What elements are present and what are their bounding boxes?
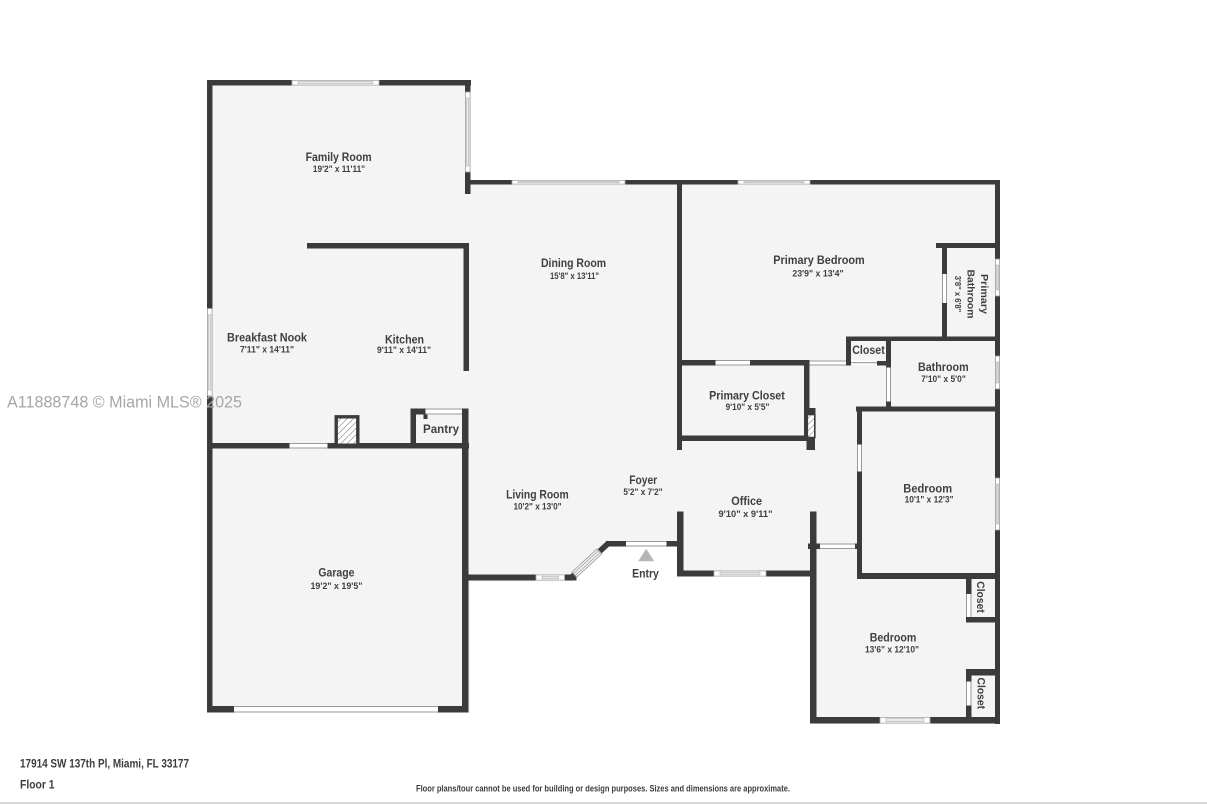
svg-text:9'10" x 5'5": 9'10" x 5'5" xyxy=(726,401,770,412)
svg-text:9'11" x 14'11": 9'11" x 14'11" xyxy=(377,344,431,355)
svg-text:Office: Office xyxy=(731,494,762,508)
svg-text:Bathroom: Bathroom xyxy=(918,360,969,374)
svg-text:13'6" x 12'10": 13'6" x 12'10" xyxy=(865,644,919,655)
svg-text:Bedroom: Bedroom xyxy=(870,631,917,645)
svg-text:Living Room: Living Room xyxy=(506,488,569,502)
svg-text:Floor plans/tour cannot be use: Floor plans/tour cannot be used for buil… xyxy=(416,784,790,795)
svg-text:7'10" x 5'0": 7'10" x 5'0" xyxy=(921,373,966,384)
svg-text:15'8" x 13'11": 15'8" x 13'11" xyxy=(550,270,599,281)
svg-text:Breakfast Nook: Breakfast Nook xyxy=(227,331,307,345)
svg-text:17914 SW 137th Pl, Miami, FL 3: 17914 SW 137th Pl, Miami, FL 33177 xyxy=(20,758,189,771)
svg-text:Entry: Entry xyxy=(632,567,659,581)
svg-text:9'10" x 9'11": 9'10" x 9'11" xyxy=(719,508,773,519)
svg-text:Foyer: Foyer xyxy=(629,473,657,487)
svg-text:7'11" x 14'11": 7'11" x 14'11" xyxy=(240,344,294,355)
svg-text:Dining Room: Dining Room xyxy=(541,256,606,270)
svg-text:Bathroom: Bathroom xyxy=(965,270,976,319)
svg-text:Primary: Primary xyxy=(978,274,989,314)
svg-text:19'2" x 19'5": 19'2" x 19'5" xyxy=(311,580,363,591)
svg-text:Floor 1: Floor 1 xyxy=(20,779,55,792)
svg-text:3'8" x 6'8": 3'8" x 6'8" xyxy=(953,276,963,313)
svg-text:5'2" x 7'2": 5'2" x 7'2" xyxy=(623,486,662,497)
svg-text:Closet: Closet xyxy=(975,678,987,710)
svg-text:Closet: Closet xyxy=(974,581,986,613)
svg-text:10'1" x 12'3": 10'1" x 12'3" xyxy=(905,494,954,505)
svg-text:10'2" x 13'0": 10'2" x 13'0" xyxy=(513,501,561,512)
svg-text:19'2" x 11'11": 19'2" x 11'11" xyxy=(313,163,365,174)
svg-text:23'9" x 13'4": 23'9" x 13'4" xyxy=(792,268,843,279)
svg-text:Garage: Garage xyxy=(318,566,354,580)
svg-text:Primary Bedroom: Primary Bedroom xyxy=(773,253,865,267)
svg-text:Pantry: Pantry xyxy=(423,422,459,436)
svg-text:Family Room: Family Room xyxy=(306,150,372,164)
svg-text:Closet: Closet xyxy=(852,343,885,357)
svg-text:A11888748 © Miami MLS® 2025: A11888748 © Miami MLS® 2025 xyxy=(7,393,242,412)
